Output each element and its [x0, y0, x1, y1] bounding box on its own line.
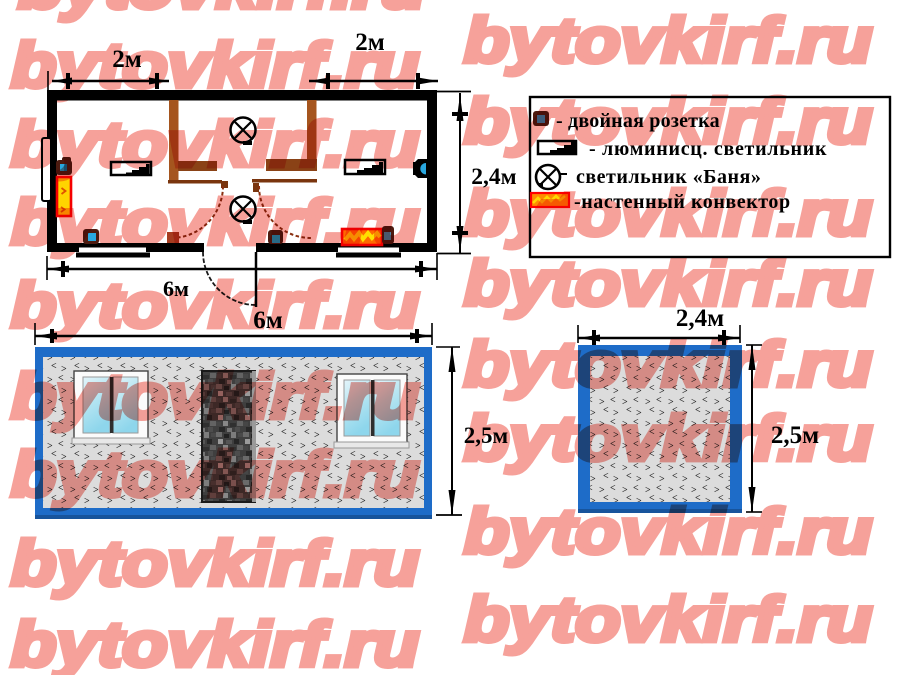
svg-text:bytovkirf.ru: bytovkirf.ru: [11, 31, 419, 101]
svg-text:bytovkirf.ru: bytovkirf.ru: [464, 585, 872, 655]
svg-text:bytovkirf.ru: bytovkirf.ru: [464, 87, 872, 157]
svg-text:bytovkirf.ru: bytovkirf.ru: [11, 362, 419, 432]
svg-text:bytovkirf.ru: bytovkirf.ru: [464, 249, 872, 319]
svg-text:bytovkirf.ru: bytovkirf.ru: [11, 110, 419, 180]
svg-text:bytovkirf.ru: bytovkirf.ru: [464, 179, 872, 249]
svg-text:bytovkirf.ru: bytovkirf.ru: [11, 610, 419, 675]
svg-text:bytovkirf.ru: bytovkirf.ru: [464, 404, 872, 474]
svg-text:bytovkirf.ru: bytovkirf.ru: [464, 330, 872, 400]
svg-text:bytovkirf.ru: bytovkirf.ru: [18, 0, 426, 22]
svg-text:bytovkirf.ru: bytovkirf.ru: [11, 271, 419, 341]
svg-text:bytovkirf.ru: bytovkirf.ru: [11, 188, 419, 258]
svg-text:bytovkirf.ru: bytovkirf.ru: [11, 529, 419, 599]
svg-text:bytovkirf.ru: bytovkirf.ru: [464, 6, 872, 76]
svg-text:bytovkirf.ru: bytovkirf.ru: [464, 497, 872, 567]
svg-text:bytovkirf.ru: bytovkirf.ru: [11, 440, 419, 510]
